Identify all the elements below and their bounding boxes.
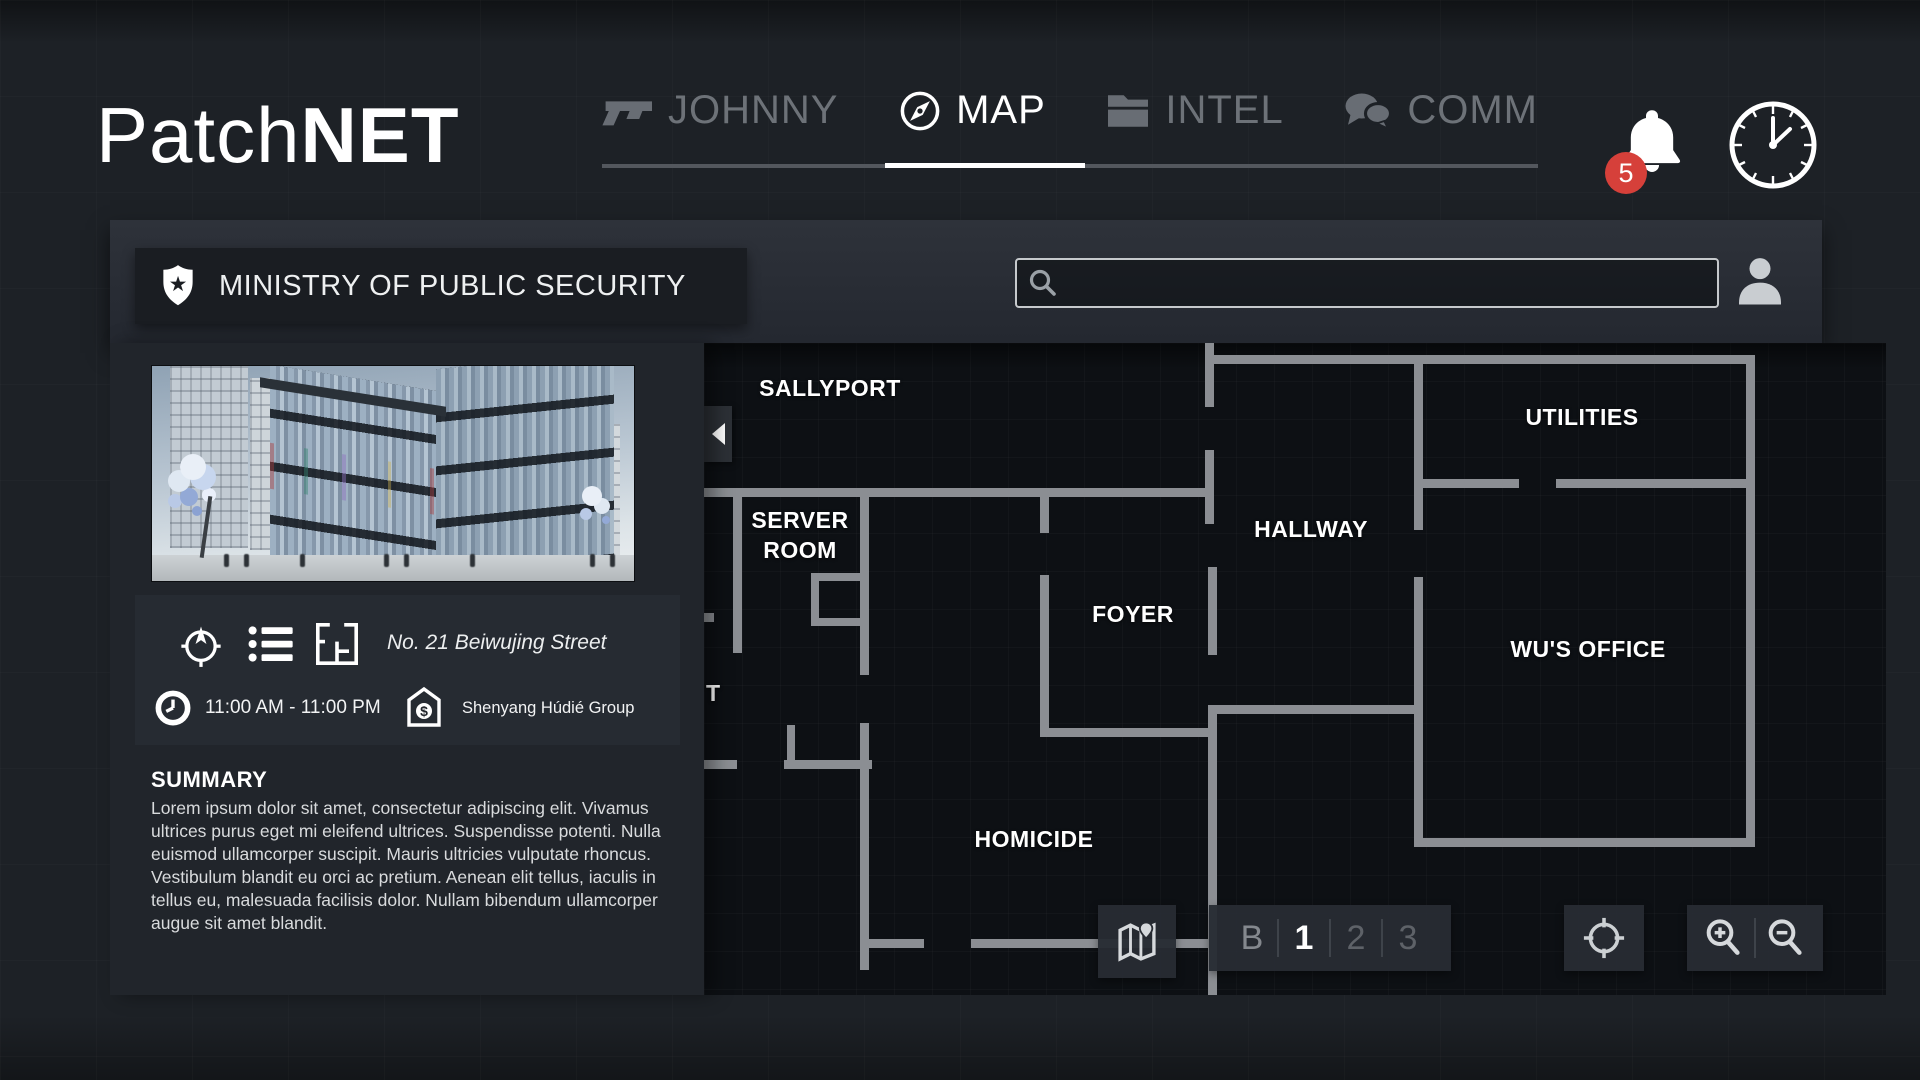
room-label-hallway: HALLWAY — [1254, 515, 1368, 545]
floor-option-b[interactable]: B — [1227, 919, 1277, 958]
police-badge-icon: ★ — [157, 263, 199, 309]
wall — [1746, 355, 1755, 847]
wall — [1414, 577, 1423, 838]
search-icon — [1027, 267, 1059, 299]
tab-intel[interactable]: INTEL — [1105, 88, 1283, 133]
floor-option-3[interactable]: 3 — [1383, 919, 1433, 958]
photo-person — [300, 554, 305, 567]
main-nav: JOHNNY MAP INTEL — [602, 88, 1538, 133]
floor-option-2[interactable]: 2 — [1331, 919, 1381, 958]
wall — [1040, 575, 1049, 732]
tab-label: INTEL — [1165, 88, 1283, 133]
active-tab-underline — [885, 163, 1085, 168]
wall — [1208, 567, 1217, 655]
folder-icon — [1105, 91, 1151, 131]
search-bar — [1015, 258, 1719, 308]
wall — [1414, 479, 1519, 488]
wall — [811, 581, 819, 619]
room-label-homicide: HOMICIDE — [975, 825, 1094, 855]
wall — [866, 939, 924, 948]
floorplan-map[interactable]: SALLYPORT SERVER ROOM FOYER HALLWAY UTIL… — [704, 343, 1886, 995]
photo-person — [224, 554, 229, 567]
wall — [811, 618, 865, 626]
svg-text:★: ★ — [169, 273, 188, 296]
room-label-sallyport: SALLYPORT — [759, 374, 901, 404]
location-address: No. 21 Beiwujing Street — [387, 631, 606, 655]
location-panel: No. 21 Beiwujing Street 11:00 AM - 11:00… — [110, 343, 704, 995]
wall — [704, 760, 737, 769]
wall — [704, 488, 1209, 497]
wall — [860, 488, 869, 675]
photo-tree — [582, 486, 602, 506]
photo-floor-bands — [436, 365, 614, 582]
wall — [1205, 450, 1214, 524]
wall — [860, 723, 869, 970]
user-icon — [1732, 252, 1788, 308]
photo-person — [244, 554, 249, 567]
tab-map[interactable]: MAP — [898, 88, 1046, 133]
photo-person — [384, 554, 389, 567]
zoom-in-icon[interactable] — [1700, 914, 1748, 962]
user-button[interactable] — [1732, 252, 1788, 308]
wall — [1208, 705, 1418, 714]
collapse-panel-button[interactable] — [704, 406, 732, 462]
zoom-out-icon[interactable] — [1762, 914, 1810, 962]
list-button[interactable] — [248, 625, 294, 663]
list-icon — [248, 625, 294, 663]
room-label-foyer: FOYER — [1092, 600, 1174, 630]
wall — [811, 573, 865, 581]
wall — [704, 613, 714, 622]
tab-label: MAP — [956, 88, 1046, 133]
gun-icon — [602, 95, 654, 127]
floorplan-icon — [313, 620, 361, 668]
room-label-wus-office: WU'S OFFICE — [1510, 635, 1665, 665]
location-photo — [151, 365, 635, 582]
locate-button[interactable] — [177, 620, 225, 668]
wall — [784, 760, 872, 769]
wall — [787, 725, 795, 761]
crosshair-icon — [1578, 912, 1630, 964]
map-mode-button[interactable] — [1098, 905, 1176, 978]
wall — [1040, 728, 1217, 737]
zoom-separator — [1754, 918, 1756, 958]
photo-building — [170, 366, 248, 548]
location-title-box: ★ MINISTRY OF PUBLIC SECURITY — [135, 248, 747, 324]
wall — [1205, 343, 1214, 407]
summary-text: Lorem ipsum dolor sit amet, consectetur … — [151, 797, 665, 935]
clock-icon — [1726, 98, 1820, 192]
room-label-server-room: SERVER ROOM — [740, 506, 860, 566]
small-clock-icon — [155, 690, 191, 726]
app-logo: PatchNET — [96, 96, 459, 174]
wall — [1556, 479, 1755, 488]
collapse-arrow-icon — [712, 423, 725, 445]
zoom-controls — [1687, 905, 1823, 971]
photo-tree — [180, 454, 206, 480]
photo-person — [610, 554, 615, 567]
photo-glass-facade — [436, 365, 614, 582]
window-header: ★ MINISTRY OF PUBLIC SECURITY — [110, 220, 1822, 343]
floorplan-button[interactable] — [313, 620, 361, 668]
room-label-partial: T — [706, 680, 720, 707]
floor-selector: B 1 2 3 — [1209, 905, 1451, 971]
wall — [1205, 355, 1755, 364]
clock-widget — [1726, 98, 1820, 192]
location-title: MINISTRY OF PUBLIC SECURITY — [219, 270, 686, 303]
location-owner: Shenyang Húdié Group — [462, 699, 634, 718]
location-hours: 11:00 AM - 11:00 PM — [205, 697, 381, 719]
wall — [1414, 355, 1423, 530]
app-logo-light: Patch — [96, 91, 300, 179]
search-input[interactable] — [1067, 271, 1707, 296]
compass-icon — [898, 89, 942, 133]
tab-johnny[interactable]: JOHNNY — [602, 88, 838, 133]
photo-person — [590, 554, 595, 567]
bank-icon: $ — [404, 685, 444, 729]
wall — [1040, 493, 1049, 533]
tab-label: JOHNNY — [668, 88, 838, 133]
summary-title: SUMMARY — [151, 767, 267, 793]
recenter-button[interactable] — [1564, 905, 1644, 971]
photo-person — [404, 554, 409, 567]
svg-text:$: $ — [420, 703, 428, 719]
app-logo-bold: NET — [300, 91, 459, 179]
wall — [1414, 838, 1755, 847]
locate-icon — [177, 620, 225, 668]
notification-badge: 5 — [1605, 152, 1647, 194]
photo-person — [470, 554, 475, 567]
floor-option-1[interactable]: 1 — [1279, 919, 1329, 958]
tab-label: COMM — [1407, 88, 1538, 133]
notification-count: 5 — [1618, 158, 1633, 189]
tab-comm[interactable]: COMM — [1343, 88, 1538, 133]
chat-icon — [1343, 91, 1393, 131]
map-fold-icon — [1111, 916, 1163, 968]
room-label-utilities: UTILITIES — [1525, 403, 1638, 433]
